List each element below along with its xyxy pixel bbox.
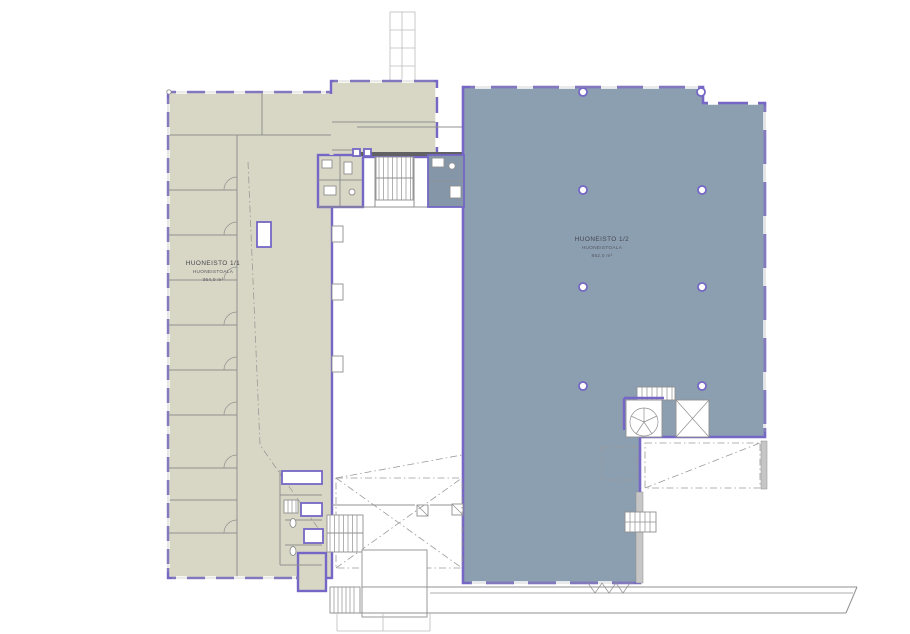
- entrance-canopy: [362, 550, 427, 587]
- toilet-fixture: [290, 519, 296, 528]
- floor-plan-page: HUONEISTO 1/1 HUONEISTOALA 364,0 m² HUON…: [0, 0, 910, 634]
- unit-1-2-area-value: 852,0 m²: [592, 253, 613, 258]
- elevator-shaft: [301, 503, 322, 516]
- retaining-wall: [636, 492, 643, 583]
- unit-1-2-area-label: HUONEISTOALA: [582, 245, 623, 250]
- exterior-stair: [330, 587, 360, 613]
- elevator-shaft: [282, 471, 322, 484]
- unit-1-1-area-value: 364,0 m²: [203, 277, 224, 282]
- unit-1-2-shape: [428, 87, 765, 583]
- grating: [625, 512, 656, 532]
- duct-shaft: [257, 222, 271, 247]
- unit-1-1-area-label: HUONEISTOALA: [193, 269, 234, 274]
- terrace-dashed: [645, 443, 760, 488]
- floor-plan-drawing: HUONEISTO 1/1 HUONEISTOALA 364,0 m² HUON…: [0, 0, 910, 634]
- unit-1-1-name: HUONEISTO 1/1: [186, 260, 240, 267]
- roof-access-structure: [390, 12, 415, 84]
- stairwell-bottom: [327, 515, 363, 552]
- retaining-wall: [761, 441, 767, 489]
- elevator-unit-2: [676, 400, 709, 437]
- toilet-fixture: [290, 547, 296, 556]
- unit-1-2-name: HUONEISTO 1/2: [575, 236, 629, 243]
- elevator-shaft: [304, 529, 323, 543]
